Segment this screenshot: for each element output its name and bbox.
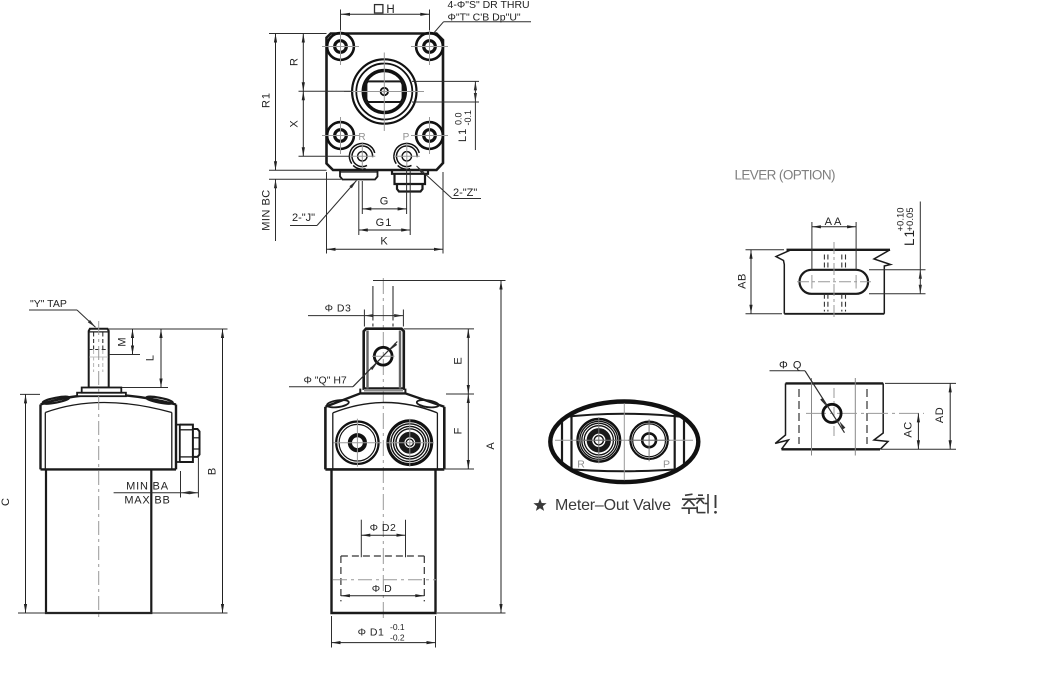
svg-text:G: G [380,196,389,208]
svg-text:MIN BC: MIN BC [261,189,273,231]
svg-text:4-Φ"S" DR THRU: 4-Φ"S" DR THRU [448,0,530,11]
svg-text:X: X [289,120,301,128]
svg-text:B: B [207,468,219,475]
svg-text:P: P [663,459,670,471]
svg-text:+0.05: +0.05 [905,207,916,231]
svg-text:2-"Z": 2-"Z" [453,187,477,199]
svg-text:Φ D1: Φ D1 [358,627,385,639]
svg-text:AD: AD [934,407,946,423]
svg-text:"Y" TAP: "Y" TAP [30,298,67,310]
svg-text:F: F [453,427,465,434]
svg-text:G1: G1 [376,217,393,229]
svg-text:A: A [485,442,497,450]
svg-text:-0.1: -0.1 [390,622,405,632]
svg-text:P: P [403,132,410,143]
svg-text:Φ D: Φ D [372,583,392,595]
svg-text:K: K [380,236,388,248]
svg-text:L1: L1 [457,128,469,142]
svg-text:AA: AA [825,216,844,228]
svg-text:MIN BA: MIN BA [126,481,169,493]
svg-text:R: R [358,132,365,143]
svg-text:M: M [117,337,129,346]
svg-text:Φ "Q" H7: Φ "Q" H7 [304,375,347,387]
svg-text:R1: R1 [261,92,273,108]
svg-text:MAX BB: MAX BB [124,495,170,507]
svg-text:Φ D2: Φ D2 [370,522,397,534]
svg-text:L: L [145,355,157,361]
svg-text:Meter–Out Valve: Meter–Out Valve [555,497,671,514]
svg-text:Φ D3: Φ D3 [325,303,352,315]
svg-text:C: C [0,498,12,506]
svg-text:0.0: 0.0 [454,112,464,125]
svg-text:AC: AC [903,421,915,437]
svg-text:R: R [577,459,585,471]
svg-text:Φ Q: Φ Q [779,360,802,372]
svg-text:E: E [453,357,465,364]
svg-text:-0.1: -0.1 [463,110,473,126]
svg-text:-0.2: -0.2 [390,633,405,643]
svg-text:AB: AB [737,273,749,289]
svg-text:LEVER (OPTION): LEVER (OPTION) [735,168,835,183]
svg-text:R: R [289,58,301,66]
svg-text:2-"J": 2-"J" [292,212,315,224]
